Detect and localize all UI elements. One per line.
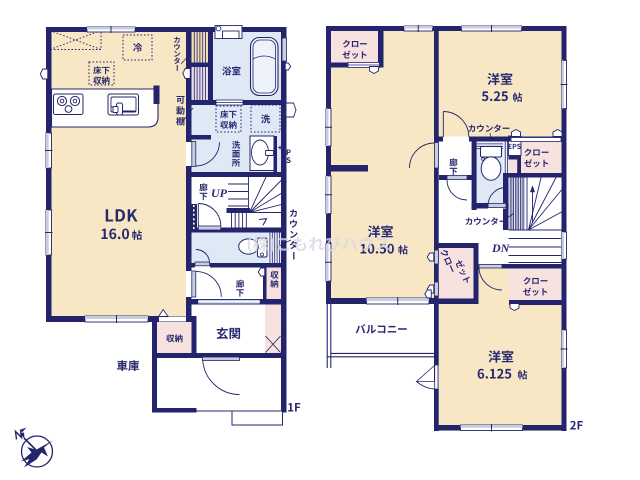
svg-text:UP: UP (211, 186, 228, 200)
svg-text:DN: DN (491, 241, 511, 255)
